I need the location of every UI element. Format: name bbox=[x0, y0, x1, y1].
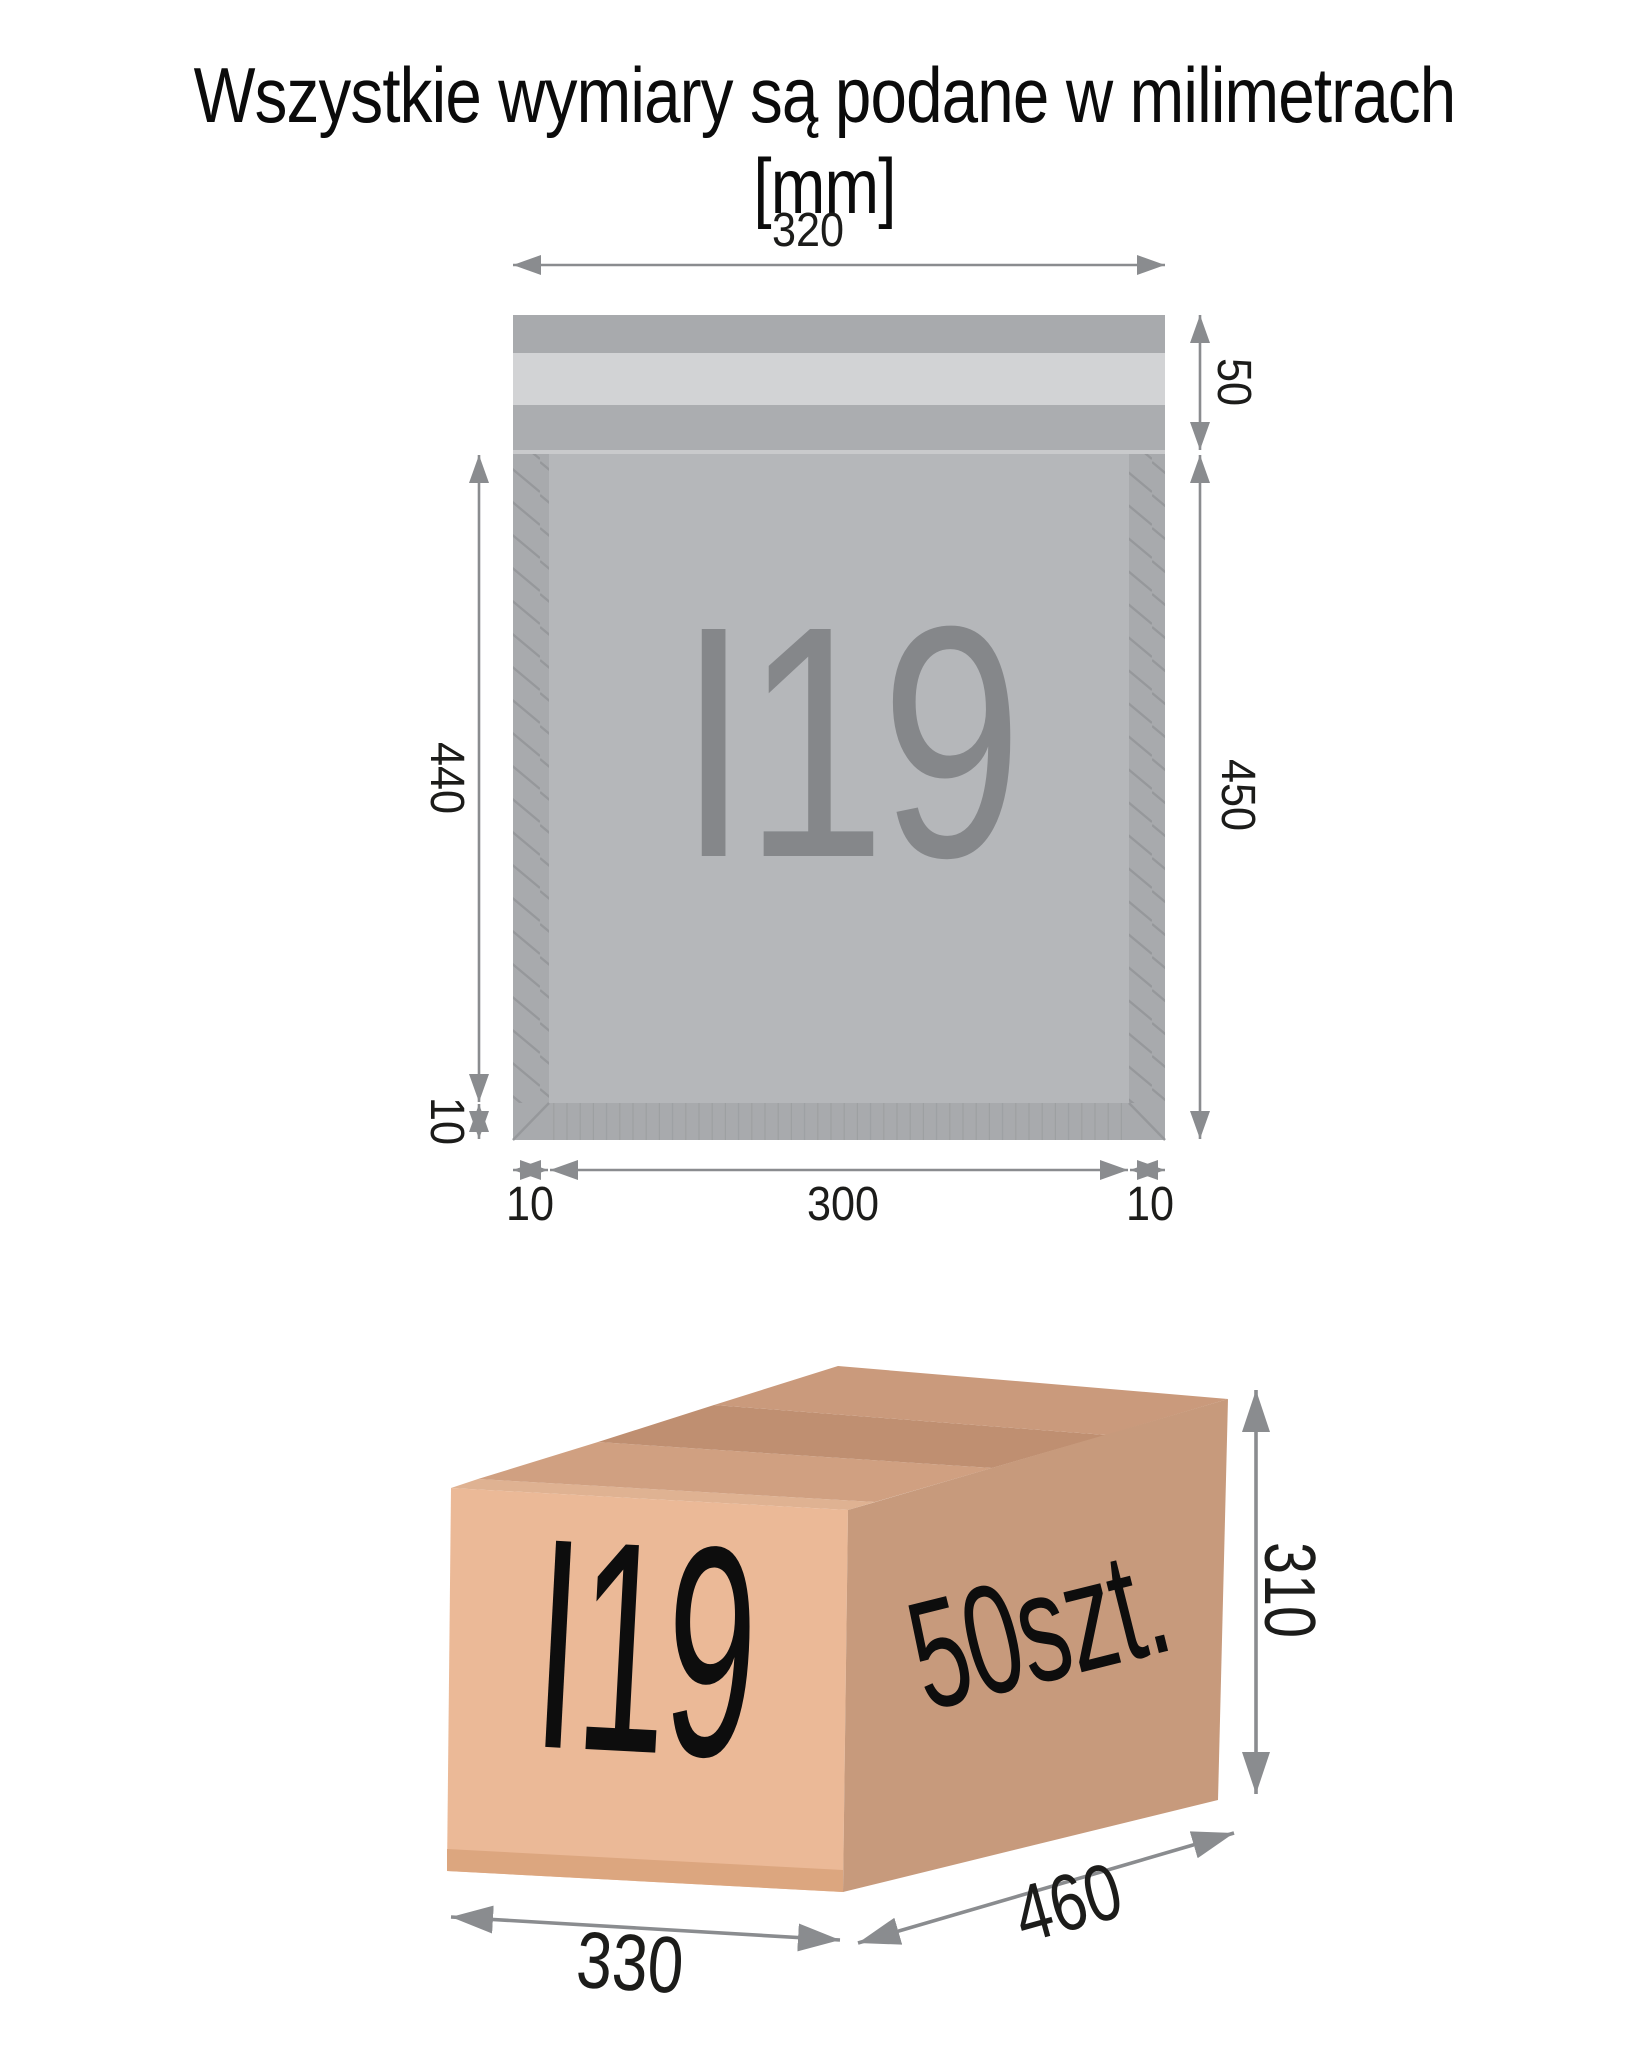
envelope-flap-band-top bbox=[513, 315, 1165, 353]
dim-label-right-border-10: 10 bbox=[1126, 1181, 1174, 1229]
box-product-code: I19 bbox=[528, 1492, 762, 1803]
dim-label-box-height-310: 310 bbox=[1253, 1542, 1325, 1638]
envelope-flap-band-bottom bbox=[513, 405, 1165, 450]
dim-label-inner-height-440: 440 bbox=[422, 742, 470, 814]
dim-label-left-border-10: 10 bbox=[506, 1181, 554, 1229]
diagram-canvas bbox=[0, 0, 1649, 2047]
dim-label-width-320: 320 bbox=[772, 207, 844, 255]
page: Wszystkie wymiary są podane w milimetrac… bbox=[0, 0, 1649, 2047]
envelope-product-code: I19 bbox=[678, 577, 1017, 907]
dim-label-flap-50: 50 bbox=[1209, 358, 1257, 406]
envelope-bottom-seal-ticks bbox=[549, 1103, 1129, 1140]
dim-label-inner-width-300: 300 bbox=[807, 1181, 879, 1229]
dim-label-bottom-border-10: 10 bbox=[422, 1097, 470, 1145]
envelope-flap-fold-line bbox=[513, 450, 1165, 454]
dim-label-total-height-450: 450 bbox=[1213, 759, 1261, 831]
dim-label-box-width-330: 330 bbox=[574, 1920, 685, 2006]
envelope-adhesive-strip bbox=[513, 353, 1165, 405]
envelope-right-border-hatch bbox=[1129, 454, 1165, 1103]
envelope-left-border-hatch bbox=[513, 454, 549, 1103]
